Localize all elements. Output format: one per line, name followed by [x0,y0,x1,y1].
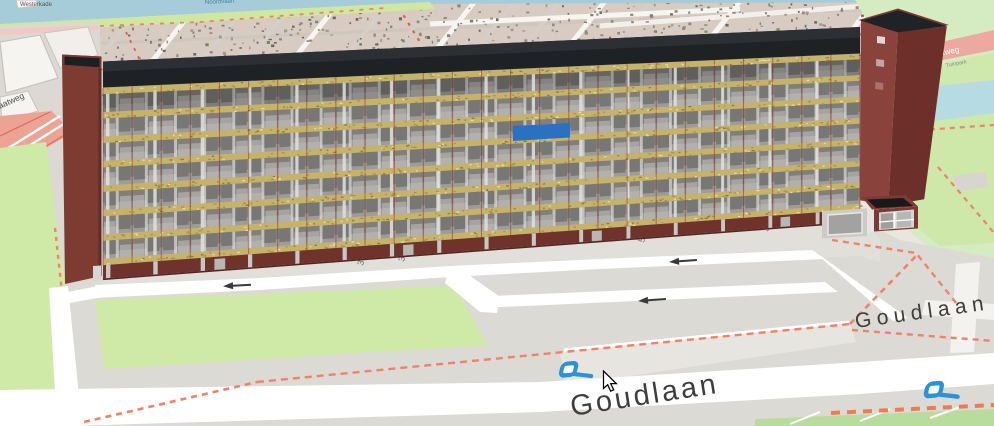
svg-text:Westerkade: Westerkade [20,2,53,8]
